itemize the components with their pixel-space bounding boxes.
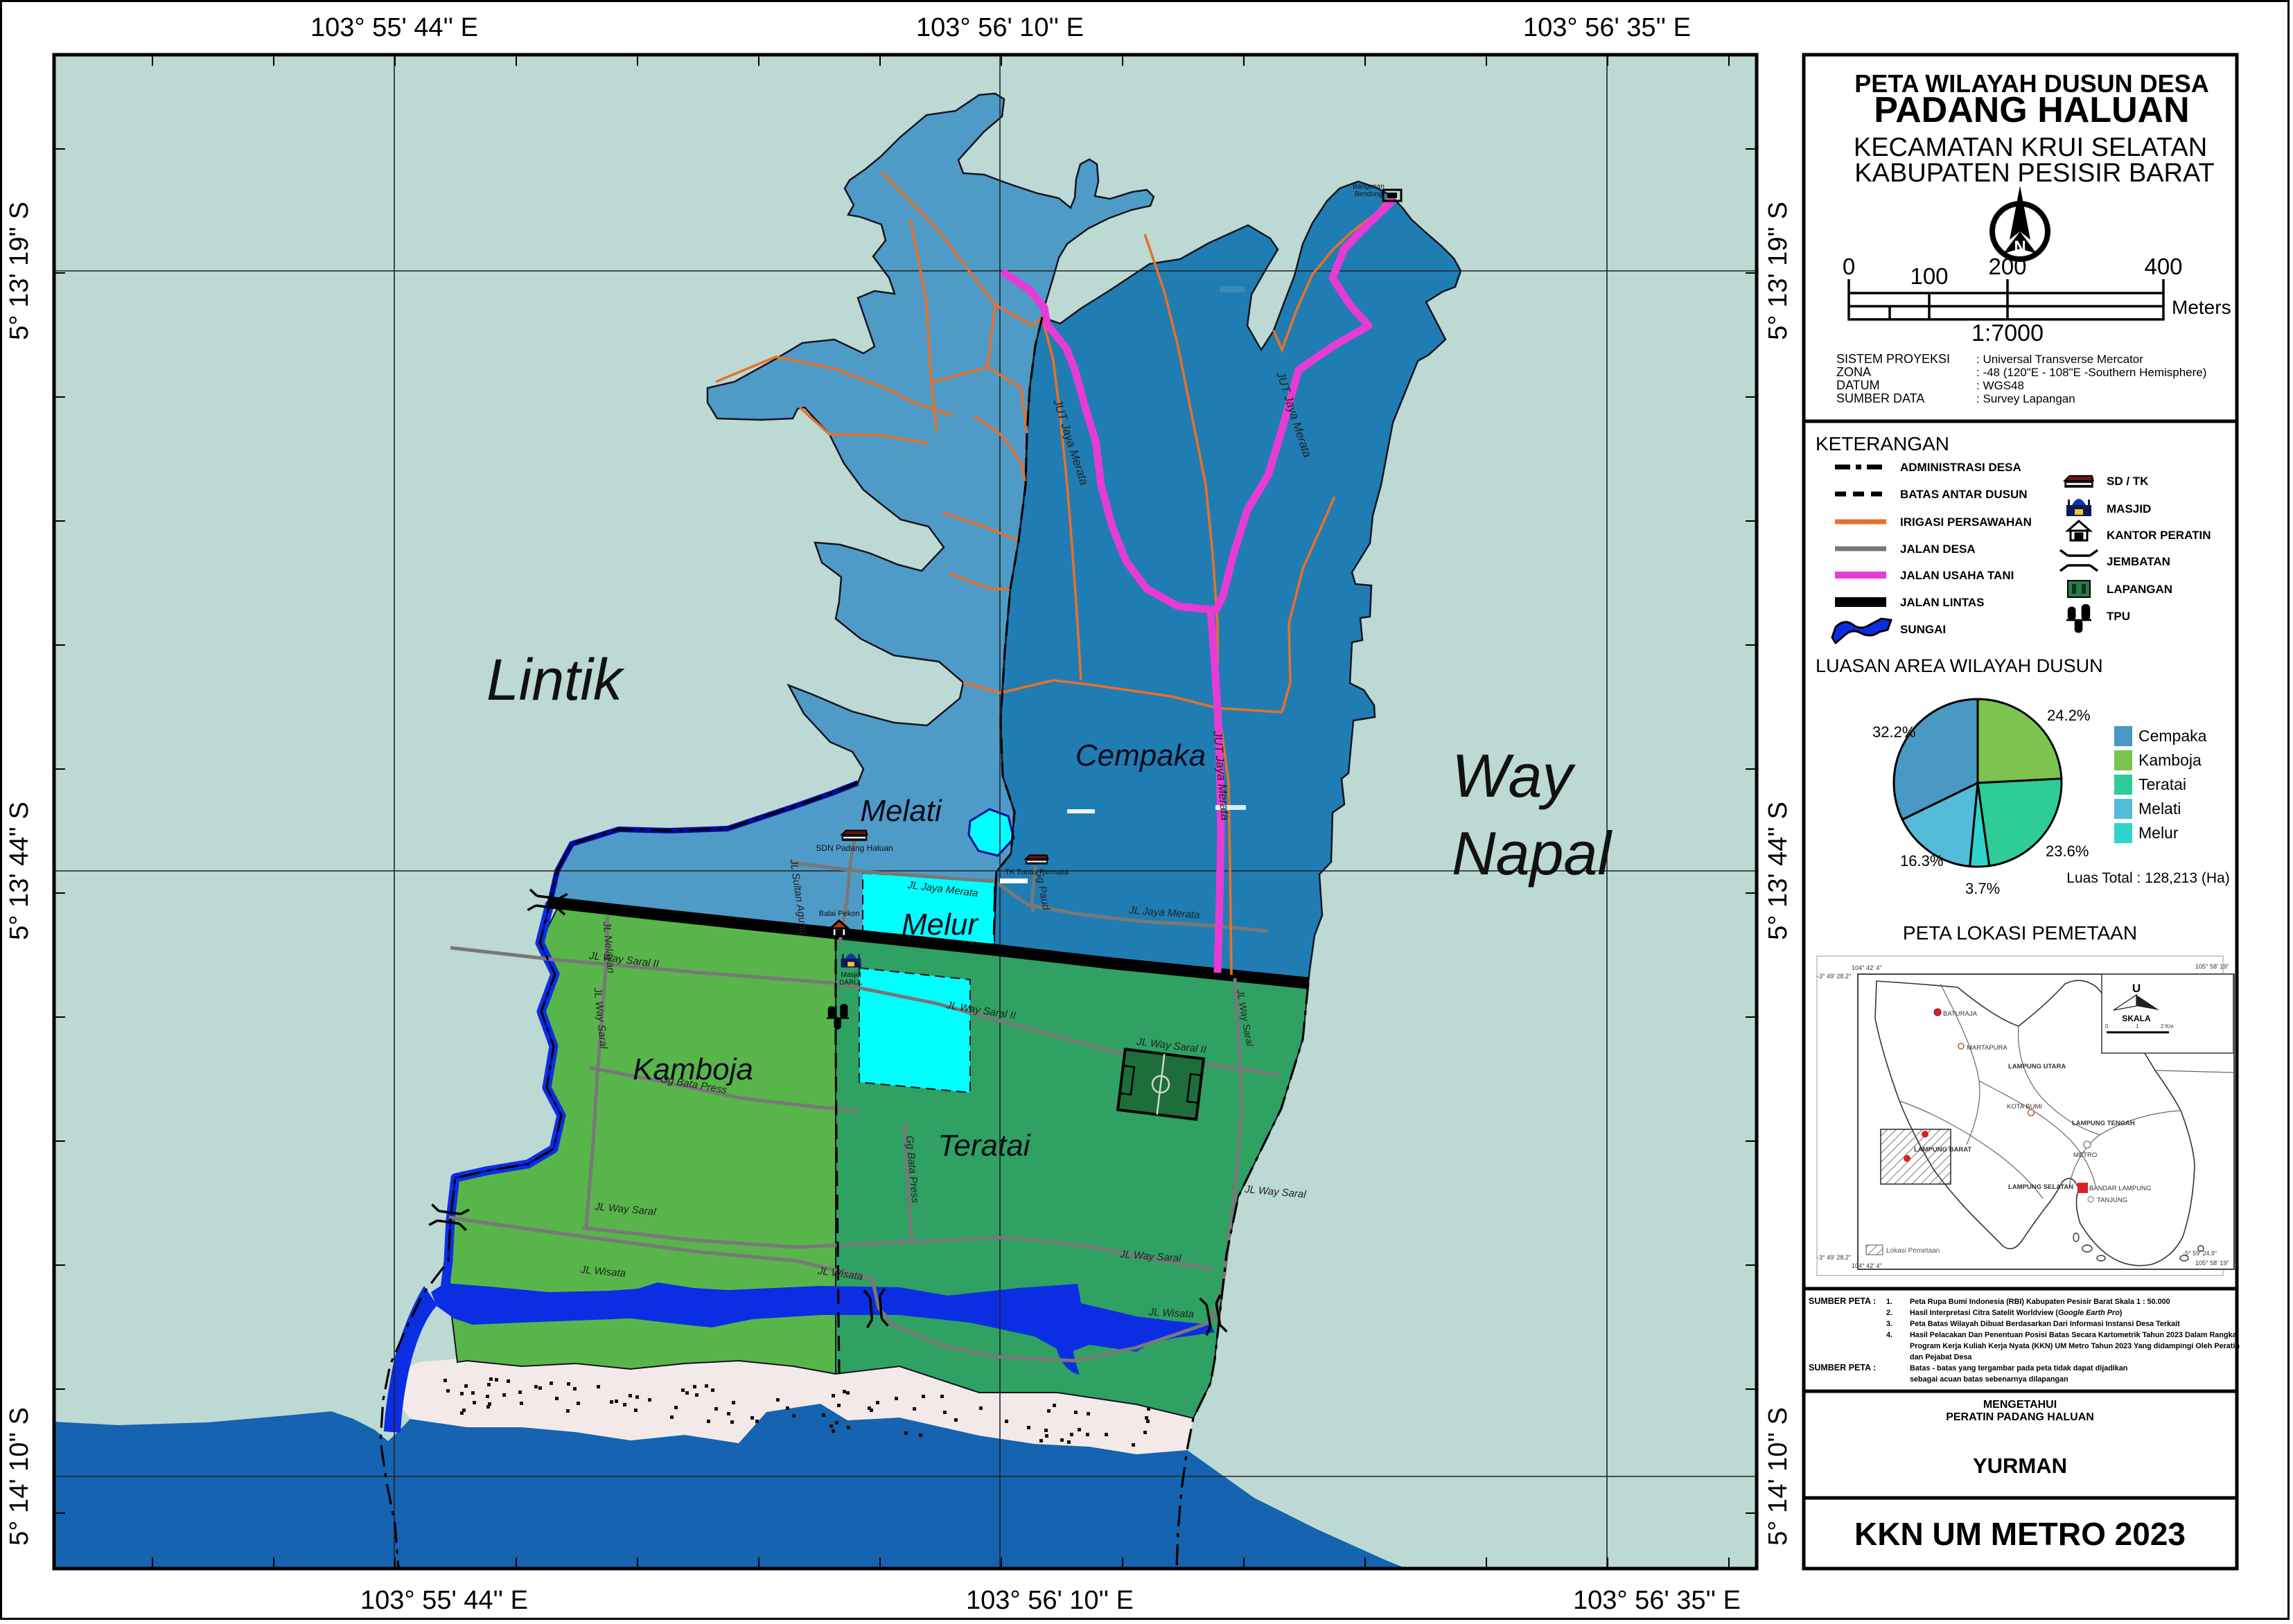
svg-text:2.: 2. [1886, 1309, 1892, 1317]
svg-text:Teratai: Teratai [2138, 775, 2186, 793]
svg-text:Meters: Meters [2172, 297, 2231, 318]
svg-text:LAMPUNG SELATAN: LAMPUNG SELATAN [2008, 1183, 2073, 1191]
svg-text:5° 13' 44'' S: 5° 13' 44'' S [1764, 802, 1793, 940]
svg-text:200: 200 [1988, 254, 2026, 279]
svg-text:KECAMATAN KRUI SELATAN: KECAMATAN KRUI SELATAN [1854, 133, 2207, 162]
svg-text:ADMINISTRASI DESA: ADMINISTRASI DESA [1900, 461, 2021, 474]
svg-text:104° 42' 4": 104° 42' 4" [1852, 1262, 1882, 1269]
svg-text:103° 55' 44'' E: 103° 55' 44'' E [310, 13, 478, 42]
svg-text:4.: 4. [1886, 1331, 1892, 1339]
svg-text:JL Wisata: JL Wisata [1148, 1306, 1194, 1320]
svg-text:LAPANGAN: LAPANGAN [2107, 583, 2172, 596]
svg-text:Masjid: Masjid [841, 971, 861, 979]
svg-text:Cempaka: Cempaka [2138, 727, 2207, 745]
svg-text:Peta Batas Wilayah Dibuat Berd: Peta Batas Wilayah Dibuat Berdasarkan Da… [1910, 1320, 2180, 1328]
svg-text:PERATIN PADANG HALUAN: PERATIN PADANG HALUAN [1946, 1411, 2094, 1423]
svg-text:23.6%: 23.6% [2046, 842, 2089, 860]
svg-text:400: 400 [2144, 254, 2182, 279]
svg-text:Balai Pekon: Balai Pekon [819, 910, 860, 918]
svg-text:-5° 59' 24.9": -5° 59' 24.9" [2183, 1250, 2217, 1257]
svg-text:0: 0 [2105, 1023, 2109, 1030]
svg-text:IRIGASI PERSAWAHAN: IRIGASI PERSAWAHAN [1900, 515, 2032, 529]
svg-text:Peta Rupa Bumi Indonesia (RBI): Peta Rupa Bumi Indonesia (RBI) Kabupaten… [1910, 1298, 2170, 1306]
svg-text:5° 14' 10'' S: 5° 14' 10'' S [1764, 1407, 1793, 1546]
svg-text:Bangunan: Bangunan [1353, 183, 1385, 191]
svg-text:Melati: Melati [2138, 800, 2181, 818]
svg-text:100: 100 [1910, 263, 1948, 289]
svg-text:MARTAPURA: MARTAPURA [1967, 1044, 2008, 1052]
svg-text:BANDAR LAMPUNG: BANDAR LAMPUNG [2089, 1185, 2151, 1192]
svg-text:1:7000: 1:7000 [1971, 320, 2044, 346]
svg-text:103° 56' 10'' E: 103° 56' 10'' E [966, 1586, 1134, 1615]
svg-text:103° 56' 35'' E: 103° 56' 35'' E [1573, 1586, 1741, 1615]
svg-text:105° 58' 19": 105° 58' 19" [2195, 1260, 2229, 1266]
svg-text:: Survey Lapangan: : Survey Lapangan [1976, 392, 2075, 405]
svg-text:Way: Way [1452, 741, 1576, 810]
svg-text:LAMPUNG BARAT: LAMPUNG BARAT [1914, 1146, 1971, 1154]
svg-text:Napal: Napal [1452, 819, 1613, 888]
svg-text:JALAN DESA: JALAN DESA [1900, 542, 1976, 556]
svg-text:Luas Total : 128,213 (Ha): Luas Total : 128,213 (Ha) [2066, 870, 2229, 886]
svg-text:103° 56' 35'' E: 103° 56' 35'' E [1523, 13, 1691, 42]
svg-text:: Universal Transverse Mercato: : Universal Transverse Mercator [1976, 353, 2143, 366]
svg-text:Hasil Pelacakan Dan Penentuan: Hasil Pelacakan Dan Penentuan Posisi Bat… [1910, 1331, 2237, 1339]
svg-text:KANTOR PERATIN: KANTOR PERATIN [2107, 529, 2211, 542]
svg-text:Cempaka: Cempaka [1075, 739, 1206, 773]
svg-text:5° 13' 19'' S: 5° 13' 19'' S [5, 202, 34, 340]
svg-text:SD / TK: SD / TK [2107, 475, 2149, 488]
svg-text:MENGETAHUI: MENGETAHUI [1983, 1399, 2057, 1411]
svg-text:5° 14' 10'' S: 5° 14' 10'' S [5, 1407, 34, 1546]
svg-text:103° 56' 10'' E: 103° 56' 10'' E [916, 13, 1084, 42]
svg-text:BATAS ANTAR DUSUN: BATAS ANTAR DUSUN [1900, 488, 2028, 501]
svg-text:ZONA: ZONA [1836, 365, 1871, 379]
svg-text:Melur: Melur [902, 908, 979, 942]
svg-text:: -48 (120"E - 108"E -Southern: : -48 (120"E - 108"E -Southern Hemispher… [1976, 366, 2206, 379]
svg-text:U: U [2132, 982, 2141, 995]
svg-text:Kamboja: Kamboja [2138, 751, 2202, 769]
svg-text:Hasil Interpretasi Citra Satel: Hasil Interpretasi Citra Satelit Worldvi… [1910, 1309, 2123, 1317]
svg-text:YURMAN: YURMAN [1973, 1454, 2067, 1478]
svg-text:TPU: TPU [2107, 610, 2130, 623]
svg-text:3.: 3. [1886, 1320, 1892, 1328]
svg-text:Lokasi Pemetaan: Lokasi Pemetaan [1886, 1247, 1940, 1255]
svg-text:: WGS48: : WGS48 [1976, 379, 2024, 392]
svg-text:Bendung: Bendung [1355, 191, 1382, 198]
svg-text:5° 13' 19'' S: 5° 13' 19'' S [1764, 202, 1793, 340]
svg-text:LUASAN AREA WILAYAH DUSUN: LUASAN AREA WILAYAH DUSUN [1816, 655, 2103, 676]
svg-text:KKN UM METRO 2023: KKN UM METRO 2023 [1854, 1516, 2186, 1552]
svg-text:dan Pejabat Desa: dan Pejabat Desa [1910, 1353, 1972, 1361]
svg-text:LAMPUNG TENGAH: LAMPUNG TENGAH [2072, 1120, 2135, 1127]
svg-text:PETA LOKASI PEMETAAN: PETA LOKASI PEMETAAN [1903, 922, 2137, 944]
svg-text:sebagai acuan batas sebenarnya: sebagai acuan batas sebenarnya dilapanga… [1910, 1375, 2068, 1384]
svg-text:-3° 49' 28.2": -3° 49' 28.2" [1817, 1254, 1851, 1261]
svg-text:Teratai: Teratai [938, 1129, 1031, 1163]
svg-text:SUMBER PETA :: SUMBER PETA : [1809, 1296, 1876, 1306]
svg-text:KABUPATEN PESISIR BARAT: KABUPATEN PESISIR BARAT [1854, 159, 2214, 188]
svg-text:2 Km: 2 Km [2161, 1023, 2174, 1030]
svg-text:PADANG HALUAN: PADANG HALUAN [1874, 90, 2189, 130]
svg-text:JALAN USAHA TANI: JALAN USAHA TANI [1900, 569, 2014, 582]
svg-text:JEMBATAN: JEMBATAN [2107, 555, 2170, 568]
svg-text:SUMBER PETA :: SUMBER PETA : [1809, 1363, 1876, 1373]
svg-text:Melur: Melur [2138, 824, 2179, 842]
svg-text:1: 1 [2136, 1023, 2139, 1030]
svg-text:24.2%: 24.2% [2047, 707, 2090, 724]
svg-text:JALAN LINTAS: JALAN LINTAS [1900, 596, 1985, 609]
svg-text:SDN Padang Haluan: SDN Padang Haluan [816, 843, 893, 853]
svg-text:Melati: Melati [860, 794, 942, 828]
svg-text:Lintik: Lintik [486, 647, 625, 712]
svg-text:5° 13' 44'' S: 5° 13' 44'' S [5, 802, 34, 940]
svg-text:SUNGAI: SUNGAI [1900, 623, 1946, 636]
svg-text:MASJID: MASJID [2107, 502, 2151, 515]
svg-text:LAMPUNG UTARA: LAMPUNG UTARA [2008, 1063, 2066, 1070]
svg-text:0: 0 [1843, 254, 1855, 279]
svg-text:Program Kerja Kuliah Kerja Nya: Program Kerja Kuliah Kerja Nyata (KKN) U… [1910, 1342, 2240, 1350]
svg-text:1.: 1. [1886, 1298, 1892, 1306]
svg-text:SISTEM PROYEKSI: SISTEM PROYEKSI [1836, 352, 1950, 366]
svg-text:KETERANGAN: KETERANGAN [1816, 433, 1949, 454]
svg-text:KOTA BUMI: KOTA BUMI [2007, 1103, 2042, 1111]
svg-text:16.3%: 16.3% [1900, 852, 1943, 870]
svg-text:Batas - batas yang tergambar p: Batas - batas yang tergambar pada peta t… [1910, 1364, 2127, 1373]
svg-text:103° 55' 44'' E: 103° 55' 44'' E [360, 1586, 528, 1615]
svg-text:SUMBER DATA: SUMBER DATA [1836, 391, 1924, 405]
svg-text:105° 58' 19": 105° 58' 19" [2195, 963, 2229, 970]
svg-text:DARUL: DARUL [839, 979, 863, 987]
svg-text:TANJUNG: TANJUNG [2097, 1197, 2127, 1204]
svg-text:104° 42' 4": 104° 42' 4" [1852, 964, 1882, 971]
svg-text:SKALA: SKALA [2122, 1014, 2151, 1023]
svg-text:3.7%: 3.7% [1965, 880, 2000, 897]
svg-text:METRO: METRO [2073, 1151, 2097, 1159]
svg-text:BATURAJA: BATURAJA [1943, 1010, 1978, 1018]
svg-text:32.2%: 32.2% [1872, 723, 1915, 741]
svg-text:-3° 49' 28.2": -3° 49' 28.2" [1817, 973, 1851, 980]
svg-text:DATUM: DATUM [1836, 378, 1880, 392]
